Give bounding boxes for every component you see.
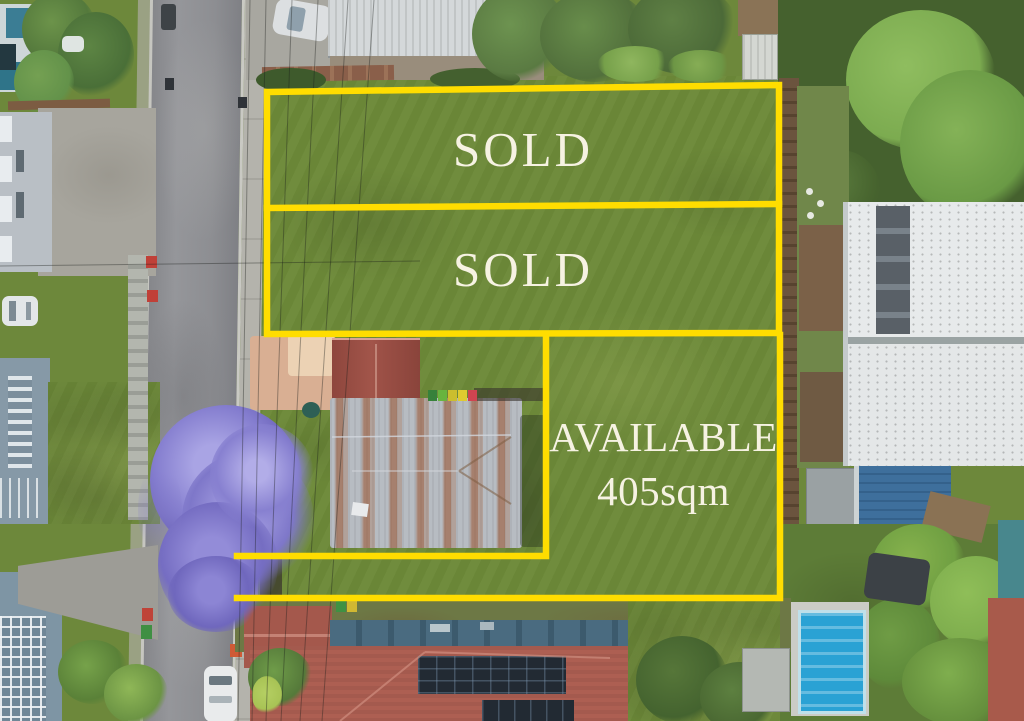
aerial-photo-scene: SOLD SOLD AVAILABLE 405sqm — [0, 0, 1024, 721]
power-lines — [0, 0, 420, 721]
lot-boundaries — [237, 85, 780, 598]
lot-divider — [267, 204, 779, 208]
roof-ridge-lines — [332, 344, 610, 721]
overlay-graphics — [0, 0, 1024, 721]
